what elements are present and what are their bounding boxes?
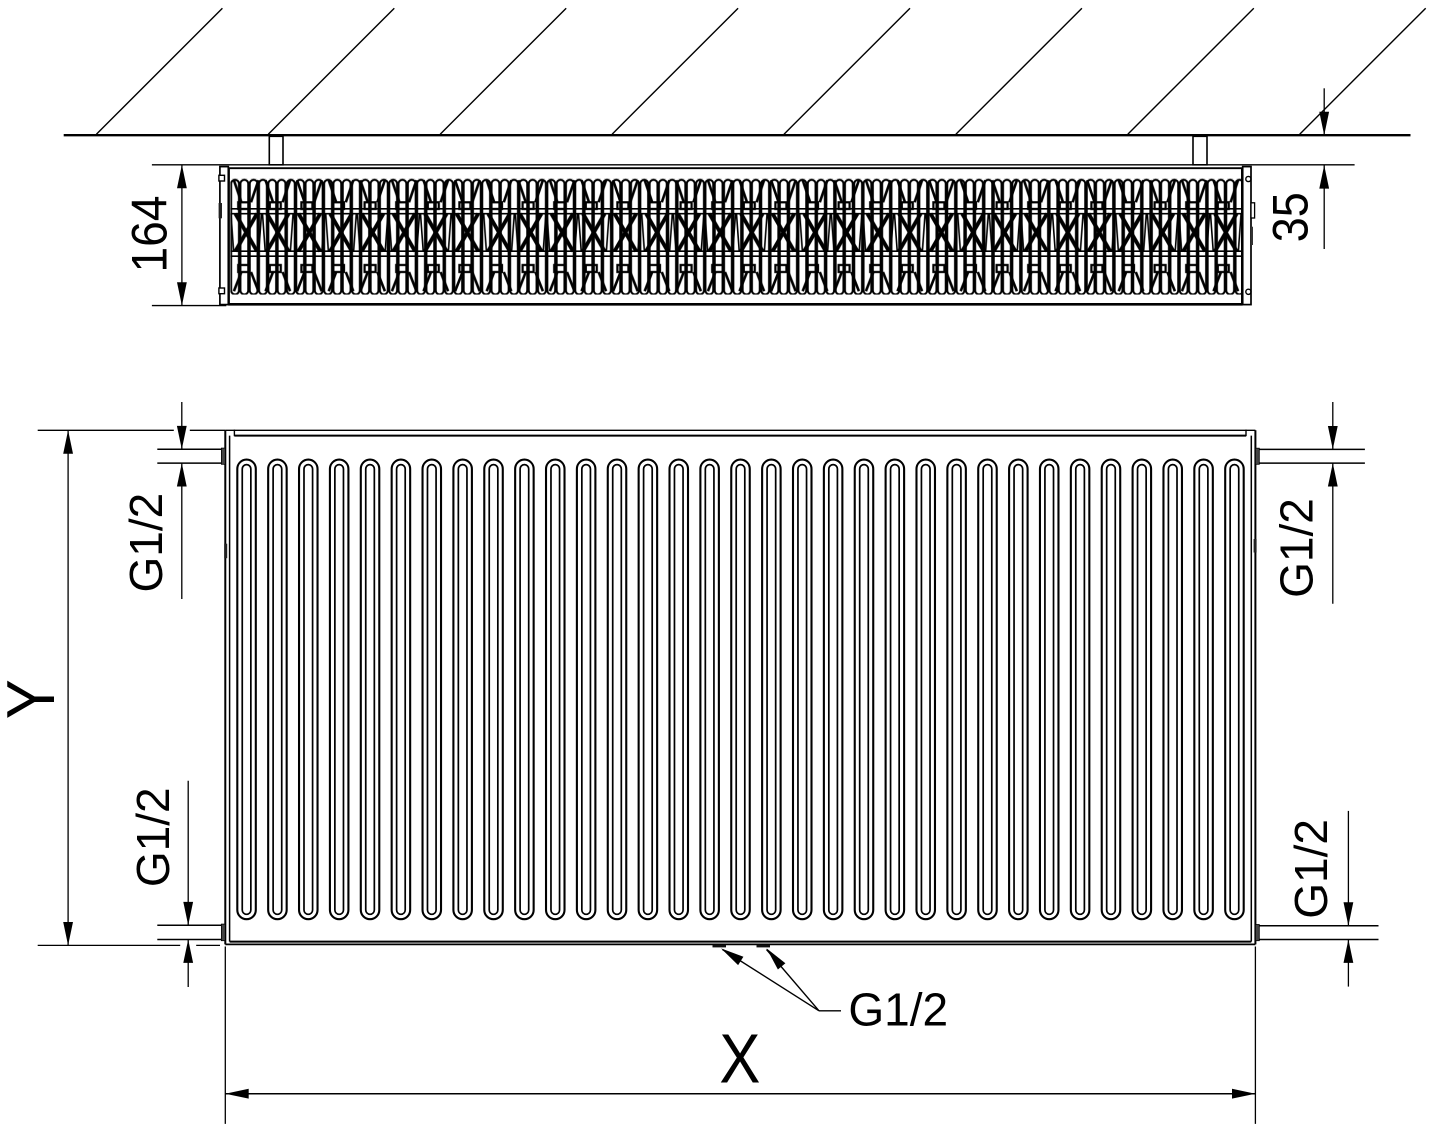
svg-text:G1/2: G1/2 xyxy=(120,493,172,593)
svg-text:G1/2: G1/2 xyxy=(1271,498,1323,598)
svg-text:G1/2: G1/2 xyxy=(1285,819,1337,919)
svg-text:Y: Y xyxy=(0,679,69,719)
svg-text:X: X xyxy=(719,1020,760,1098)
svg-text:G1/2: G1/2 xyxy=(127,787,179,887)
svg-text:G1/2: G1/2 xyxy=(848,984,948,1036)
svg-text:164: 164 xyxy=(122,196,178,273)
svg-text:35: 35 xyxy=(1263,192,1319,242)
